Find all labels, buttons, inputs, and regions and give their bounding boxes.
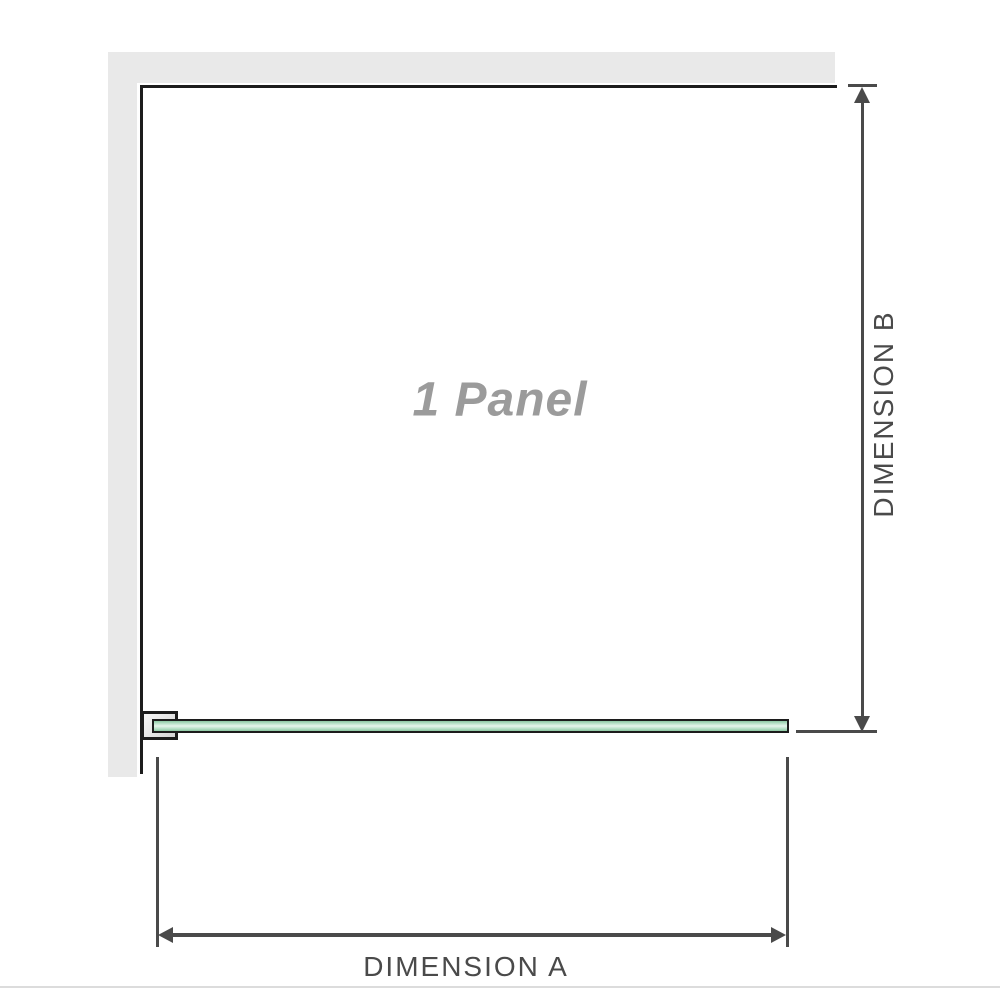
panel-outline-top	[140, 85, 837, 88]
glass-panel	[152, 719, 789, 733]
dimension-a-tick-left	[156, 757, 159, 947]
dimension-b-arrowhead-down-icon	[854, 716, 870, 732]
dimension-b-line	[861, 98, 864, 718]
panel-label: 1 Panel	[412, 373, 587, 428]
dimension-a-arrowhead-right-icon	[771, 927, 786, 943]
dimension-a-line	[170, 933, 775, 937]
dimension-b-arrowhead-up-icon	[854, 87, 870, 103]
dimension-a-label: DIMENSION A	[363, 951, 569, 983]
dimension-a-tick-right	[786, 757, 789, 947]
dimension-a-arrowhead-left-icon	[158, 927, 173, 943]
wall-top	[108, 52, 835, 83]
bottom-separator-line	[0, 986, 1000, 988]
diagram-canvas: 1 Panel DIMENSION B DIMENSION A	[0, 0, 1000, 1000]
wall-left	[108, 52, 137, 777]
panel-outline-left	[140, 85, 143, 774]
dimension-b-label: DIMENSION B	[868, 310, 900, 517]
